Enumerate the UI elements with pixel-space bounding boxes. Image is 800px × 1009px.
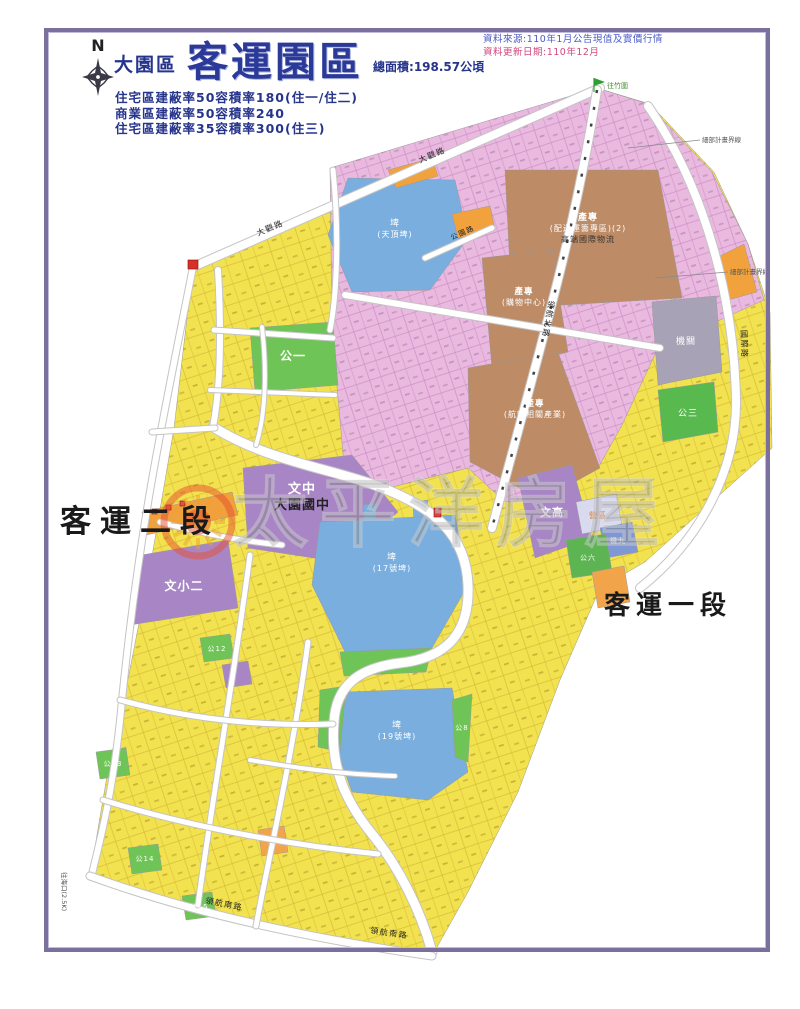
callout-text: 細部計畫界線: [730, 267, 770, 276]
regulation-line-1: 住宅區建蔽率50容積率180(住一/住二): [115, 90, 358, 106]
regulation-line-3: 住宅區建蔽率35容積率300(住三): [115, 121, 358, 137]
district-label: 大園區: [114, 50, 177, 83]
zoning-regulations: 住宅區建蔽率50容積率180(住一/住二) 商業區建蔽率50容積率240 住宅區…: [115, 90, 358, 137]
zone-label-park-3: 公三: [678, 408, 698, 419]
marker: [188, 260, 198, 269]
section-label-keyun-section-2: 客運二段: [60, 504, 220, 540]
zone-label-park-12: 公12: [208, 645, 227, 653]
watermark: 太平洋房屋: [164, 469, 672, 558]
callout-text: 細部計畫界線: [702, 135, 742, 144]
title-row: 大園區 客運園區 總面積:198.57公頃: [114, 42, 484, 83]
map-page: 埤(天頂埤)產專(配送運籌專區)(2)高端國際物流產專(購物中心)產專(航空相關…: [0, 0, 800, 1009]
source-line: 資料來源:110年1月公告現值及實價行情: [483, 33, 663, 46]
regulation-line-2: 商業區建蔽率50容積率240: [115, 106, 358, 122]
compass-rose-icon: [78, 55, 118, 99]
zone-label-school-elementary-2: 文小二: [164, 578, 203, 593]
map-note: 往竹圍: [607, 81, 628, 90]
zone-label-park-14: 公14: [136, 855, 155, 863]
road-label-intl-road: 國際路: [739, 330, 750, 359]
page-title: 客運園區: [187, 42, 363, 83]
map-note: 往海口(2.5K): [60, 872, 69, 911]
zone-label-agency: 機關: [676, 335, 696, 347]
zone-pond-low: [334, 688, 468, 800]
total-area-stat: 總面積:198.57公頃: [373, 58, 484, 83]
watermark-text: 太平洋房屋: [232, 469, 672, 558]
zone-label-park-pond-east: 公8: [455, 724, 468, 732]
update-line: 資料更新日期:110年12月: [483, 46, 663, 59]
zoning-map: 埤(天頂埤)產專(配送運籌專區)(2)高端國際物流產專(購物中心)產專(航空相關…: [0, 0, 800, 1009]
zone-label-park-1: 公一: [280, 349, 306, 363]
data-source-block: 資料來源:110年1月公告現值及實價行情 資料更新日期:110年12月: [483, 33, 663, 59]
zone-label-park-13: 公13: [104, 760, 123, 768]
section-label-keyun-section-1: 客運一段: [604, 590, 732, 621]
